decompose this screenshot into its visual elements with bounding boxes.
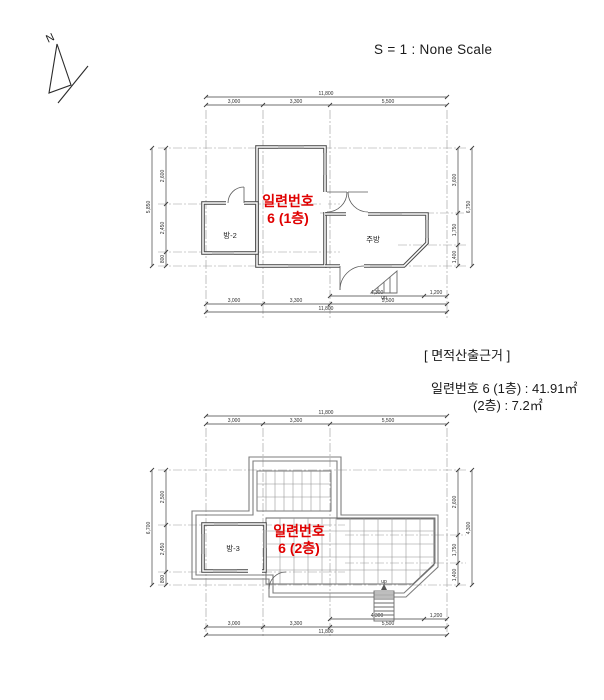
dim-label: 3,300 — [290, 621, 303, 627]
room-label-bang2: 방-2 — [223, 230, 237, 240]
dim-label: 11,800 — [319, 629, 334, 635]
stairs-label: up — [381, 579, 387, 585]
dim-label: 3,300 — [290, 298, 303, 304]
dim-label: 5,850 — [146, 201, 152, 214]
dim-label: 3,300 — [290, 418, 303, 424]
dim-label: 2,500 — [160, 491, 166, 504]
unit-label-1f-line1: 일련번호 — [262, 193, 314, 209]
area-note-line2: (2층) : 7.2㎡ — [473, 395, 543, 414]
dims-top-1f: 11,800 3,000 3,300 5,500 — [204, 91, 449, 107]
north-arrow-icon: N — [44, 31, 88, 103]
scale-label: S = 1 : None Scale — [374, 42, 492, 57]
area-note-title: [ 면적산출근거 ] — [424, 345, 510, 364]
roof-grid-upper — [257, 471, 331, 511]
dim-label: 2,600 — [452, 496, 458, 509]
dim-label: 1,400 — [452, 569, 458, 582]
door-opening — [226, 200, 244, 206]
dim-label: 5,500 — [382, 418, 395, 424]
dim-label: 11,800 — [319, 306, 334, 312]
dims-left-1f: 5,850 2,600 2,450 800 — [146, 146, 168, 268]
door-opening — [248, 568, 262, 574]
dim-label: 3,000 — [228, 99, 241, 105]
dims-right-1f: 3,600 1,750 1,400 6,750 — [452, 146, 474, 268]
stairs-icon-1f: up — [371, 271, 397, 301]
dim-label: 2,600 — [160, 170, 166, 183]
unit-label-2f-line2: 6 (2층) — [278, 540, 320, 556]
dims-bottom-1f: 4,300 1,200 3,000 3,300 5,500 11,800 — [204, 290, 449, 314]
dim-label: 1,400 — [452, 251, 458, 264]
dim-label: 1,200 — [430, 290, 443, 296]
dim-label: 4,300 — [371, 613, 384, 619]
dim-label: 11,800 — [319, 410, 334, 416]
dims-bottom-2f: 4,300 1,200 3,000 3,300 5,500 11,800 — [204, 613, 449, 637]
stairs-label: up — [381, 295, 387, 301]
room-label-kitchen: 주방 — [366, 234, 380, 244]
dim-label: 800 — [160, 255, 166, 264]
floor-plan-1f: 11,800 3,000 3,300 5,500 4,300 1,200 3,0… — [146, 91, 474, 318]
dim-label: 3,000 — [228, 621, 241, 627]
dim-label: 3,000 — [228, 298, 241, 304]
door-opening — [322, 192, 328, 212]
dim-label: 2,450 — [160, 543, 166, 556]
dims-right-2f: 2,600 1,750 1,400 4,300 — [452, 468, 474, 587]
dim-label: 1,750 — [452, 544, 458, 557]
dim-label: 3,600 — [452, 174, 458, 187]
unit-label-2f-line1: 일련번호 — [273, 523, 325, 539]
unit-label-1f-line2: 6 (1층) — [267, 210, 309, 226]
dim-label: 1,750 — [452, 224, 458, 237]
dim-label: 5,500 — [382, 621, 395, 627]
north-label: N — [44, 31, 56, 45]
dim-label: 800 — [160, 575, 166, 584]
windows-1f — [212, 145, 429, 268]
room-label-bang3: 방-3 — [226, 543, 240, 553]
dim-label: 2,450 — [160, 222, 166, 235]
dim-label: 6,750 — [466, 201, 472, 214]
floor-plan-2f: 11,800 3,000 3,300 5,500 4,300 1,200 3,0… — [146, 410, 474, 638]
dims-left-2f: 6,700 2,500 2,450 800 — [146, 468, 168, 587]
walls-1f — [203, 147, 427, 266]
plan-drawing: N 11, — [0, 0, 604, 700]
dim-label: 3,300 — [290, 99, 303, 105]
dim-label: 11,800 — [319, 91, 334, 97]
dim-label: 3,000 — [228, 418, 241, 424]
dim-label: 6,700 — [146, 522, 152, 535]
dims-top-2f: 11,800 3,000 3,300 5,500 — [204, 410, 449, 426]
dim-label: 4,300 — [466, 522, 472, 535]
dim-label: 5,500 — [382, 99, 395, 105]
drawing-sheet: N 11, — [0, 0, 604, 700]
dim-label: 1,200 — [430, 613, 443, 619]
